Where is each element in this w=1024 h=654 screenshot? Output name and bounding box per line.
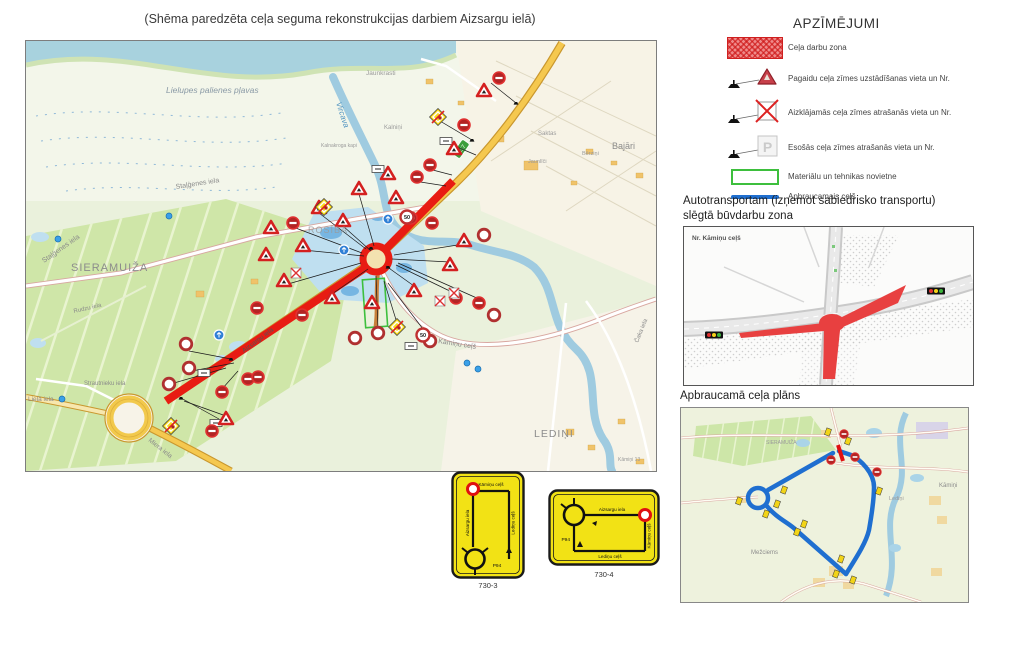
- svg-text:P94: P94: [493, 563, 502, 569]
- svg-text:Lediņi: Lediņi: [889, 496, 904, 502]
- detour-plan-canvas: SIERAMUIŽA Kāmiņi Mežciems Lediņi: [681, 408, 968, 602]
- closed-zone-canvas: Nr. Kāmiņu ceļš: [684, 227, 973, 385]
- svg-text:50: 50: [420, 333, 426, 339]
- closed-zone-heading-line2: slēgtā būvdarbu zona: [683, 209, 978, 224]
- legend-label: Pagaidu ceļa zīmes uzstādīšanas vieta un…: [788, 74, 958, 84]
- svg-text:Mežciems: Mežciems: [751, 550, 778, 556]
- closed-zone-map: Nr. Kāmiņu ceļš: [683, 226, 974, 386]
- svg-text:50: 50: [404, 215, 410, 221]
- svg-text:Kāmiņi: Kāmiņi: [939, 483, 957, 489]
- legend-title: APZĪMĒJUMI: [793, 16, 1022, 31]
- svg-text:P94: P94: [561, 537, 570, 543]
- svg-text:Bērziņi: Bērziņi: [582, 151, 599, 157]
- existing-sign-icon: P: [725, 134, 785, 162]
- svg-text:SIERAMUIŽA: SIERAMUIŽA: [71, 261, 148, 274]
- work-zone-swatch: [727, 37, 783, 59]
- detour-plan-heading: Apbraucamā ceļa plāns: [680, 390, 970, 402]
- speed-limit-sign: 50: [417, 329, 430, 342]
- svg-text:Strautnieku iela: Strautnieku iela: [84, 381, 126, 387]
- inset1-corner-label: Nr. Kāmiņu ceļš: [692, 235, 741, 242]
- svg-text:Kalnakroga kapi: Kalnakroga kapi: [321, 143, 357, 149]
- svg-text:ROSĪBA: ROSĪBA: [308, 225, 348, 235]
- legend-label: Aizklājamās ceļa zīmes atrašanās vieta u…: [788, 108, 958, 118]
- detour-sign-730-4: Aizsargu iela Kāmiņu ceļš P94 Lediņu ceļ…: [548, 489, 660, 566]
- materials-swatch: [731, 169, 779, 185]
- detour-sign-730-4-canvas: Aizsargu iela Kāmiņu ceļš P94 Lediņu ceļ…: [548, 489, 660, 566]
- svg-text:Saktas: Saktas: [538, 131, 556, 137]
- temp-sign-icon: [725, 66, 785, 92]
- closed-point-icon: [468, 484, 479, 495]
- legend-item-covered-sign: Aizklājamās ceļa zīmes atrašanās vieta u…: [722, 99, 1022, 127]
- legend-item-temp-sign: Pagaidu ceļa zīmes uzstādīšanas vieta un…: [722, 66, 1022, 92]
- speed-limit-sign: 50: [401, 211, 414, 224]
- svg-text:Lielupes palienes pļavas: Lielupes palienes pļavas: [166, 85, 259, 95]
- closed-zone-heading: Autotransportam (izņemot sabiedrisko tra…: [683, 194, 978, 224]
- detour-plan-map: SIERAMUIŽA Kāmiņi Mežciems Lediņi: [680, 407, 969, 603]
- page-title: (Shēma paredzēta ceļa seguma rekonstrukc…: [25, 12, 655, 26]
- svg-text:Jaunlīči: Jaunlīči: [528, 159, 547, 165]
- main-map: C17: [25, 40, 657, 472]
- roundabout: [105, 394, 153, 442]
- legend-label: Materiālu un tehnikas novietne: [788, 172, 958, 182]
- svg-text:Aizsargu iela: Aizsargu iela: [465, 509, 470, 536]
- legend-item-work-zone: Ceļa darbu zona: [722, 37, 1022, 59]
- svg-text:Aizsargu iela: Aizsargu iela: [599, 507, 626, 512]
- svg-text:P: P: [763, 139, 772, 155]
- legend-item-materials: Materiālu un tehnikas novietne: [722, 169, 1022, 185]
- work-zone-junction: [363, 246, 389, 272]
- svg-text:Lediņu ceļš: Lediņu ceļš: [511, 511, 516, 535]
- legend-label: Ceļa darbu zona: [788, 43, 958, 53]
- svg-text:Lediņu ceļš: Lediņu ceļš: [598, 554, 622, 559]
- svg-text:Kāmiņi 13: Kāmiņi 13: [618, 457, 640, 463]
- legend-item-existing-sign: P Esošās ceļa zīmes atrašanās vieta un N…: [722, 134, 1022, 162]
- svg-text:LEDIŅI: LEDIŅI: [534, 428, 574, 440]
- temporary-traffic-light-icon: [705, 332, 723, 339]
- svg-text:Jaunkrasti: Jaunkrasti: [366, 70, 396, 77]
- covered-sign-icon: [725, 99, 785, 127]
- detour-sign-730-3-canvas: Kāmiņu ceļš Aizsargu iela Lediņu ceļš P9…: [451, 471, 525, 579]
- svg-text:Bajāri: Bajāri: [612, 141, 635, 151]
- temporary-traffic-light-icon: [927, 288, 945, 295]
- legend-label: Esošās ceļa zīmes atrašanās vieta un Nr.: [788, 143, 958, 153]
- svg-text:Kāmiņu ceļš: Kāmiņu ceļš: [647, 523, 652, 549]
- main-map-canvas: C17: [26, 41, 656, 471]
- svg-text:Lielā iela: Lielā iela: [28, 396, 54, 403]
- closed-zone-heading-line1: Autotransportam (izņemot sabiedrisko tra…: [683, 194, 978, 209]
- sign-code-730-3: 730-3: [451, 581, 525, 590]
- svg-text:Kalniņi: Kalniņi: [384, 125, 402, 131]
- svg-text:Kāmiņu ceļš: Kāmiņu ceļš: [478, 482, 504, 487]
- sign-code-730-4: 730-4: [548, 570, 660, 579]
- legend: APZĪMĒJUMI Ceļa darbu zona Pagaidu ceļa …: [722, 16, 1022, 209]
- svg-text:SIERAMUIŽA: SIERAMUIŽA: [766, 438, 797, 446]
- closed-point-icon: [640, 510, 651, 521]
- detour-sign-730-3: Kāmiņu ceļš Aizsargu iela Lediņu ceļš P9…: [451, 471, 525, 579]
- road-works-scheme-page: (Shēma paredzēta ceļa seguma rekonstrukc…: [0, 0, 1024, 654]
